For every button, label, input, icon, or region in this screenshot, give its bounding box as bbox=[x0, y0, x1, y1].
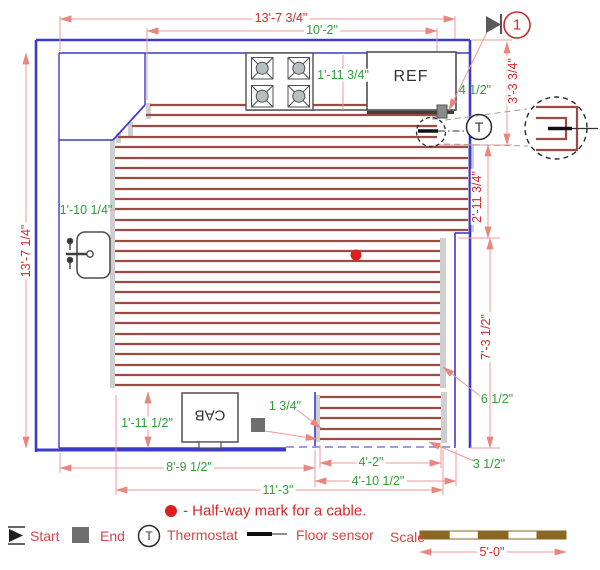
scale-value: 5'-0" bbox=[478, 546, 507, 559]
halfway-dot-icon bbox=[165, 505, 177, 517]
dim-cab-gap: 1'-11 1/2" bbox=[119, 417, 175, 430]
dim-left-gap: 1'-10 1/4" bbox=[60, 204, 113, 217]
scale-label: Scale bbox=[390, 530, 425, 544]
dim-right-mid: 2'-11 3/4" bbox=[471, 169, 484, 225]
cabinet-label: CAB bbox=[195, 408, 226, 423]
legend-end-label: End bbox=[100, 529, 125, 543]
end-icon bbox=[72, 527, 89, 543]
legend-floor-sensor-label: Floor sensor bbox=[296, 528, 374, 542]
floor-plan-canvas: 13'-7 3/4" 10'-2" 13'-7 1/4" 1'-10 1/4" … bbox=[0, 0, 600, 570]
legend-thermostat-label: Thermostat bbox=[167, 528, 238, 542]
refrigerator-label: REF bbox=[394, 69, 429, 85]
dim-right-top: 3'-3 3/4" bbox=[507, 56, 520, 106]
sink bbox=[66, 232, 110, 278]
callout-number: 1 bbox=[513, 18, 521, 33]
dim-top-counter-width: 10'-2" bbox=[304, 24, 340, 37]
cable-start-marker bbox=[437, 105, 447, 118]
thermostat-letter: T bbox=[475, 120, 484, 134]
halfway-mark-dot bbox=[351, 250, 362, 261]
dim-bottom-left-width: 8'-9 1/2" bbox=[164, 461, 214, 474]
dim-stove-ref-gap: 1'-11 3/4" bbox=[315, 69, 371, 82]
dim-left-height: 13'-7 1/4" bbox=[20, 223, 33, 280]
dim-bottom-cable-gap: 3 1/2" bbox=[473, 458, 505, 471]
legend-start-label: Start bbox=[30, 529, 60, 543]
scale-bar bbox=[420, 531, 566, 539]
start-icon bbox=[8, 527, 25, 544]
legend-thermostat-letter: T bbox=[145, 530, 152, 542]
start-flag-icon bbox=[486, 14, 501, 34]
legend-halfway-text: - Half-way mark for a cable. bbox=[183, 504, 366, 519]
stove bbox=[246, 53, 313, 110]
dim-bottom-right-inner: 4'-2" bbox=[357, 456, 386, 469]
dim-bottom-mid-width: 11'-3" bbox=[261, 484, 296, 497]
cable-end-marker bbox=[251, 418, 265, 432]
heating-cable-serpentine bbox=[115, 105, 468, 439]
dim-top-width: 13'-7 3/4" bbox=[253, 12, 310, 25]
dim-right-bottom: 7'-3 1/2" bbox=[480, 312, 493, 362]
dim-bottom-right-outer: 4'-10 1/2" bbox=[350, 475, 407, 488]
dim-end-offset: 1 3/4" bbox=[269, 400, 301, 413]
dim-start-offset: 4 1/2" bbox=[459, 84, 491, 97]
sensor-detail-circle bbox=[525, 97, 598, 159]
dim-right-cable-gap: 6 1/2" bbox=[481, 393, 513, 406]
